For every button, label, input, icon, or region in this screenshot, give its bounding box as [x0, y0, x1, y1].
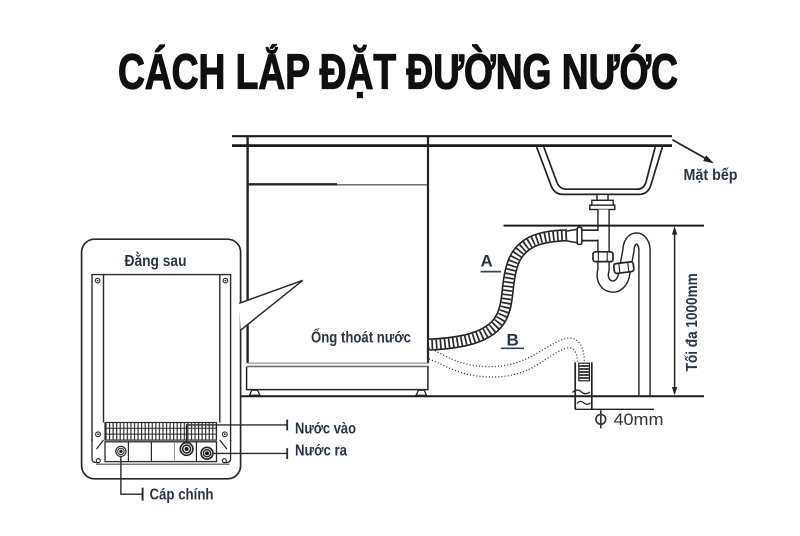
svg-text:Ống thoát nước: Ống thoát nước [311, 329, 411, 347]
svg-text:Tối đa 1000mm: Tối đa 1000mm [684, 273, 701, 371]
svg-text:Mặt bếp: Mặt bếp [684, 167, 738, 184]
svg-text:B: B [507, 331, 519, 350]
svg-text:CÁCH LẮP ĐẶT ĐƯỜNG NƯỚC: CÁCH LẮP ĐẶT ĐƯỜNG NƯỚC [118, 45, 678, 100]
svg-text:Đằng sau: Đằng sau [125, 252, 187, 270]
svg-text:Cáp chính: Cáp chính [150, 486, 214, 503]
svg-text:Nước ra: Nước ra [295, 442, 347, 459]
svg-text:A: A [481, 252, 493, 271]
svg-text:Nước vào: Nước vào [295, 420, 356, 437]
svg-text:40mm: 40mm [614, 410, 664, 429]
